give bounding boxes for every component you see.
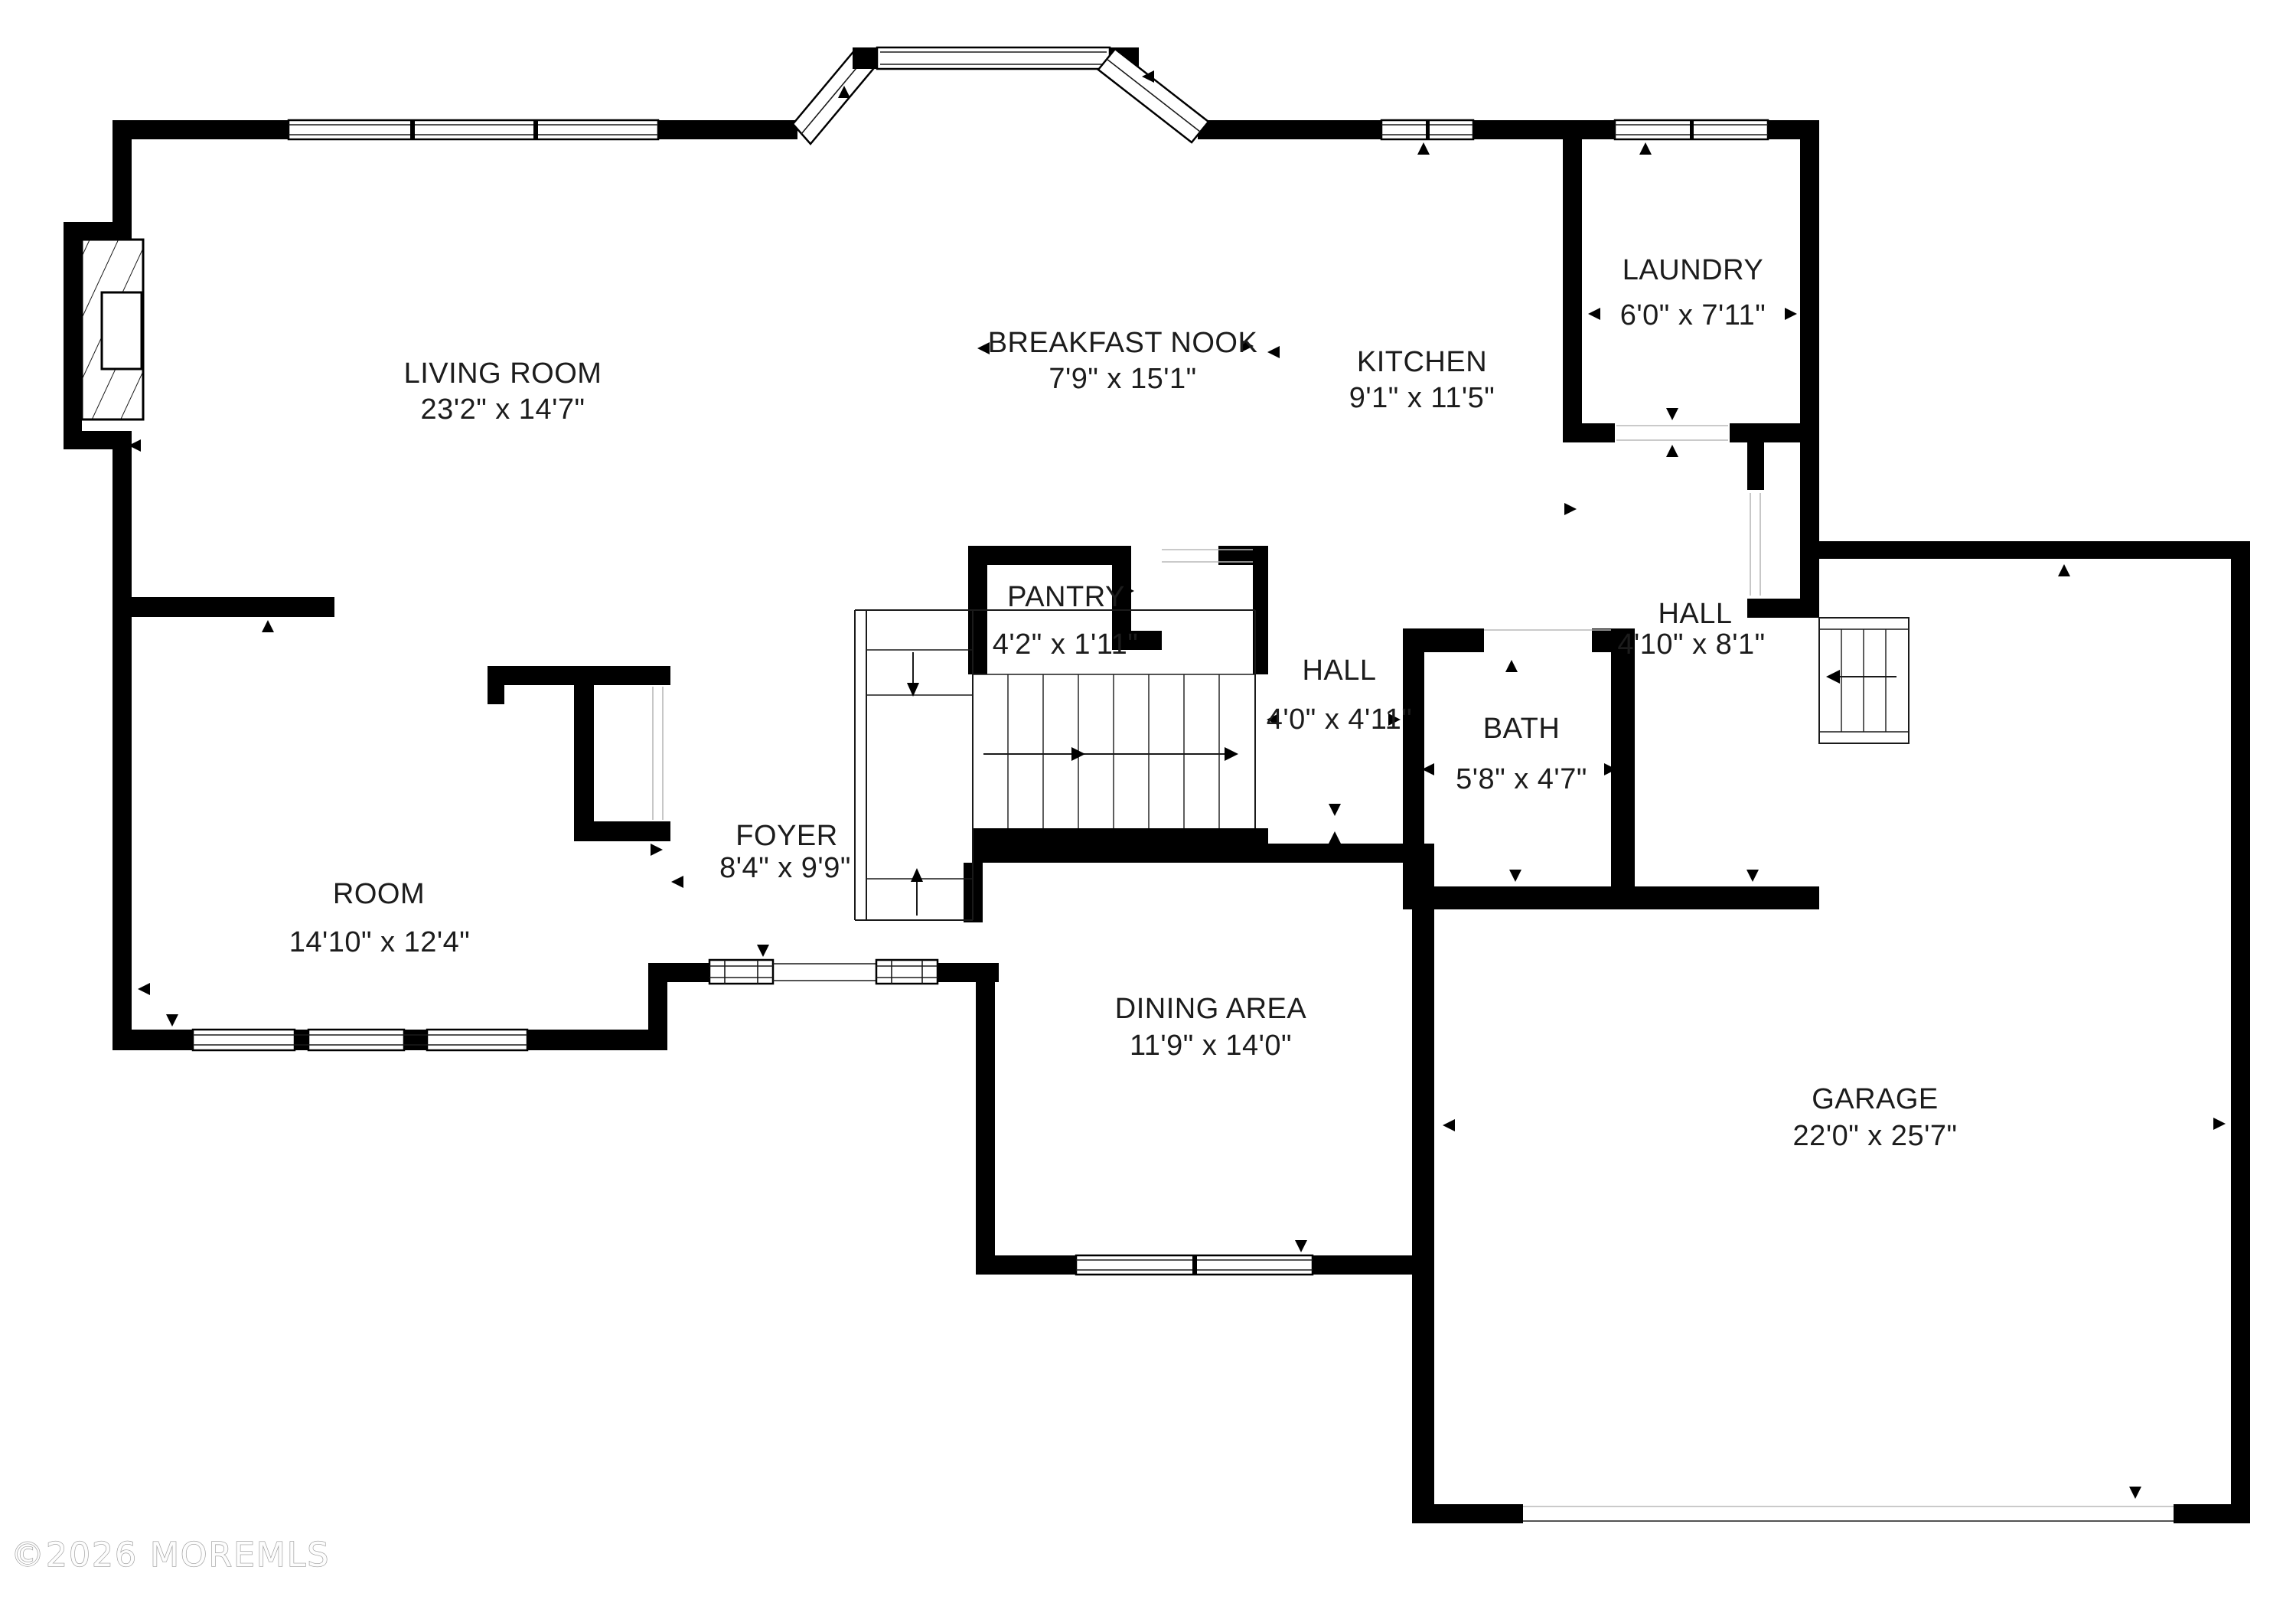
- room-label-breakfast-nook: BREAKFAST NOOK: [988, 327, 1258, 359]
- kitchen-window: [1381, 120, 1473, 139]
- room-dims-laundry: 6'0" x 7'11": [1620, 299, 1766, 331]
- room-dims-living: 23'2" x 14'7": [421, 393, 585, 426]
- room-dims-dining: 11'9" x 14'0": [1130, 1030, 1292, 1062]
- room-dims-kitchen: 9'1" x 11'5": [1349, 382, 1495, 414]
- room-label-hall-rear: HALL: [1658, 598, 1732, 630]
- room-dims-garage: 22'0" x 25'7": [1793, 1120, 1958, 1152]
- plan-background: [0, 0, 2296, 1606]
- laundry-window: [1615, 120, 1768, 139]
- living-room-window: [289, 120, 658, 139]
- room-dims-pantry: 4'2" x 1'11": [993, 628, 1138, 661]
- room-label-room: ROOM: [333, 878, 425, 910]
- room-label-bath: BATH: [1483, 713, 1561, 745]
- room-label-garage: GARAGE: [1812, 1083, 1939, 1115]
- room-windows: [193, 1030, 527, 1050]
- room-dims-foyer: 8'4" x 9'9": [719, 852, 851, 884]
- room-label-hall-kitchen: HALL: [1302, 654, 1376, 687]
- floor-plan: LIVING ROOM 23'2" x 14'7" BREAKFAST NOOK…: [0, 0, 2296, 1606]
- room-dims-bath: 5'8" x 4'7": [1456, 763, 1587, 795]
- room-label-pantry: PANTRY: [1007, 581, 1125, 613]
- fireplace: [82, 240, 143, 419]
- dining-window: [1076, 1255, 1313, 1275]
- room-dims-breakfast-nook: 7'9" x 15'1": [1049, 363, 1196, 395]
- room-label-living: LIVING ROOM: [404, 357, 602, 390]
- firebox: [102, 292, 142, 369]
- room-dims-room: 14'10" x 12'4": [289, 926, 471, 958]
- room-label-laundry: LAUNDRY: [1623, 254, 1763, 286]
- room-label-foyer: FOYER: [735, 820, 837, 852]
- room-label-kitchen: KITCHEN: [1357, 346, 1487, 378]
- room-dims-hall-kitchen: 4'0" x 4'11": [1267, 703, 1412, 736]
- watermark: ©2026 MOREMLS: [11, 1536, 330, 1575]
- room-label-dining: DINING AREA: [1115, 993, 1307, 1025]
- room-dims-hall-rear: 4'10" x 8'1": [1617, 628, 1765, 661]
